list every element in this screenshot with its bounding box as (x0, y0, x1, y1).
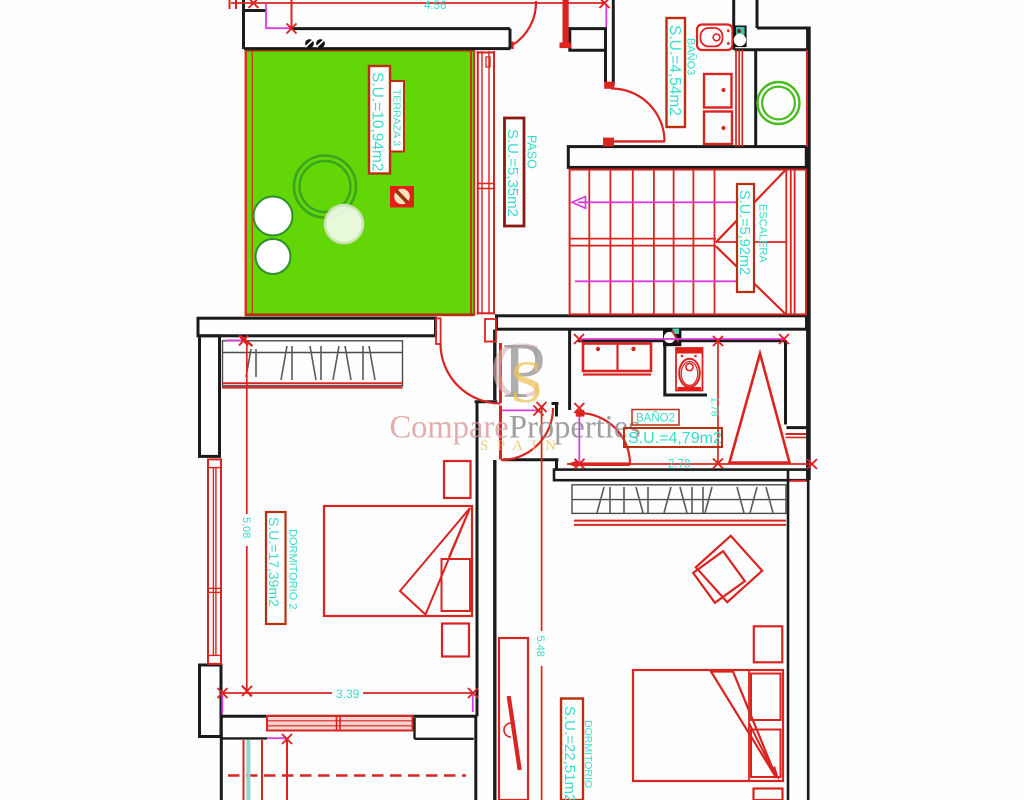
svg-text:S.U.=17,39m2: S.U.=17,39m2 (266, 517, 282, 607)
svg-text:PASO: PASO (525, 135, 539, 169)
svg-text:4.56: 4.56 (424, 0, 446, 12)
svg-text:S.U.=4,79m2: S.U.=4,79m2 (628, 430, 722, 447)
svg-text:5.48: 5.48 (534, 636, 546, 657)
svg-text:S.U.=22,51m2: S.U.=22,51m2 (561, 706, 578, 800)
svg-text:2.78: 2.78 (668, 459, 690, 471)
svg-text:TERRAZA 3: TERRAZA 3 (390, 89, 402, 146)
svg-text:S: S (510, 349, 543, 415)
svg-text:1.78: 1.78 (709, 397, 720, 417)
svg-text:5.08: 5.08 (240, 517, 252, 538)
svg-text:S.U.=4,54m2: S.U.=4,54m2 (666, 25, 683, 116)
svg-text:S.U.=5,92m2: S.U.=5,92m2 (736, 190, 752, 275)
svg-text:ESCALERA: ESCALERA (757, 204, 769, 263)
svg-text:3.39: 3.39 (336, 687, 360, 701)
svg-text:DORMITORIO 2: DORMITORIO 2 (287, 529, 299, 609)
svg-text:S.U.=10,94m2: S.U.=10,94m2 (369, 72, 386, 172)
svg-text:DORMITORIO: DORMITORIO (582, 720, 594, 788)
svg-text:S.U.=5,35m2: S.U.=5,35m2 (504, 129, 521, 217)
svg-text:BAÑO2: BAÑO2 (636, 412, 675, 425)
svg-text:SPAIN: SPAIN (480, 438, 564, 454)
svg-text:BAÑO3: BAÑO3 (685, 38, 698, 75)
